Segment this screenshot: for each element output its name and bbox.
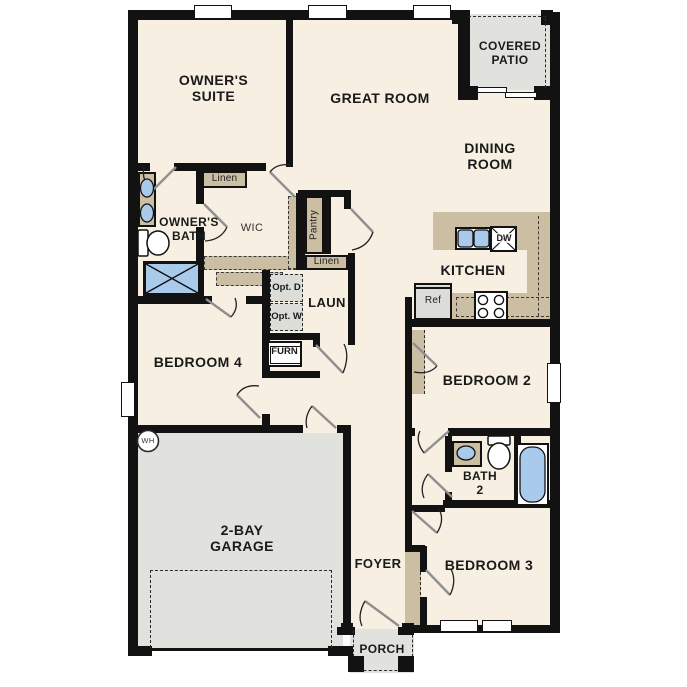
bedroom3-label: BEDROOM 3 — [430, 557, 548, 573]
foyer-label: FOYER — [350, 557, 406, 572]
wall — [405, 428, 412, 552]
porch-post — [398, 656, 414, 672]
wall — [324, 196, 331, 254]
water-heater-label: WH — [138, 437, 158, 446]
window — [121, 382, 135, 417]
wall — [174, 163, 266, 171]
wall — [420, 546, 427, 572]
wall — [246, 296, 262, 304]
porch-post — [402, 623, 414, 635]
owners-bath-label: OWNER'S BATH — [146, 216, 232, 244]
wall — [344, 197, 351, 209]
window — [308, 5, 347, 19]
optional-washer-box: Opt. W — [270, 303, 303, 331]
bath2-tub — [516, 443, 549, 506]
great-room-label: GREAT ROOM — [330, 90, 430, 106]
garage-door-dashed — [150, 570, 332, 648]
wall — [420, 597, 427, 625]
stove-box — [474, 291, 508, 321]
garage-door-line — [152, 648, 328, 651]
window — [547, 363, 561, 403]
refrigerator-top-line — [414, 287, 452, 289]
kitchen-label: KITCHEN — [430, 262, 516, 278]
wall — [128, 10, 138, 656]
refrigerator-label: Ref — [414, 295, 452, 307]
porch-post — [348, 656, 364, 672]
patio-slider-door — [505, 92, 537, 98]
wall — [286, 18, 293, 167]
wall — [458, 86, 478, 100]
patio-slider-door — [477, 87, 507, 93]
wic-label: WIC — [232, 222, 272, 235]
covered-patio-label: COVERED PATIO — [465, 40, 555, 68]
floor-plan: Opt. D Opt. W — [0, 0, 687, 687]
wall — [128, 646, 152, 656]
bedroom2-label: BEDROOM 2 — [428, 372, 546, 388]
wic-shelf-bottom — [204, 256, 301, 270]
bedroom4-label: BEDROOM 4 — [140, 354, 256, 370]
wall — [343, 425, 351, 632]
porch-post — [341, 623, 353, 635]
window — [440, 620, 478, 632]
porch-label: PORCH — [354, 643, 410, 657]
wall — [445, 436, 452, 472]
linen-top-label: Linen — [203, 173, 246, 185]
opt-washer-label: Opt. W — [271, 312, 302, 322]
opt-dryer-label: Opt. D — [272, 283, 301, 293]
dishwasher-label: DW — [493, 233, 515, 243]
garage-label: 2-BAY GARAGE — [196, 522, 288, 554]
window — [194, 5, 232, 19]
optional-dryer-box: Opt. D — [270, 274, 303, 302]
pantry-label: Pantry — [303, 199, 325, 251]
bath2-vanity — [452, 441, 482, 467]
window — [482, 620, 512, 632]
window — [413, 5, 451, 19]
dining-room-label: DINING ROOM — [440, 140, 540, 172]
wall — [452, 10, 468, 24]
wall — [137, 296, 204, 304]
wall — [204, 296, 212, 304]
wall — [348, 253, 355, 345]
kitchen-sink-box — [455, 227, 491, 250]
wall — [262, 414, 270, 425]
linen-hall-label: Linen — [306, 256, 347, 268]
wall — [405, 297, 412, 428]
wall — [137, 163, 150, 171]
wall — [137, 425, 303, 433]
owners-suite-label: OWNER'S SUITE — [156, 72, 271, 104]
bedroom2-closet — [412, 330, 425, 394]
wall — [262, 371, 320, 378]
wall — [405, 505, 445, 512]
patio-dash-top — [468, 16, 546, 18]
owners-shower — [143, 261, 201, 296]
laundry-label: LAUN — [305, 296, 349, 311]
furnace-label: FURN — [267, 347, 302, 358]
wall — [448, 428, 552, 436]
wall — [406, 625, 552, 633]
wall — [313, 333, 320, 347]
wall — [262, 333, 320, 340]
bath2-label: BATH 2 — [460, 470, 500, 498]
bedroom3-closet — [405, 552, 421, 625]
